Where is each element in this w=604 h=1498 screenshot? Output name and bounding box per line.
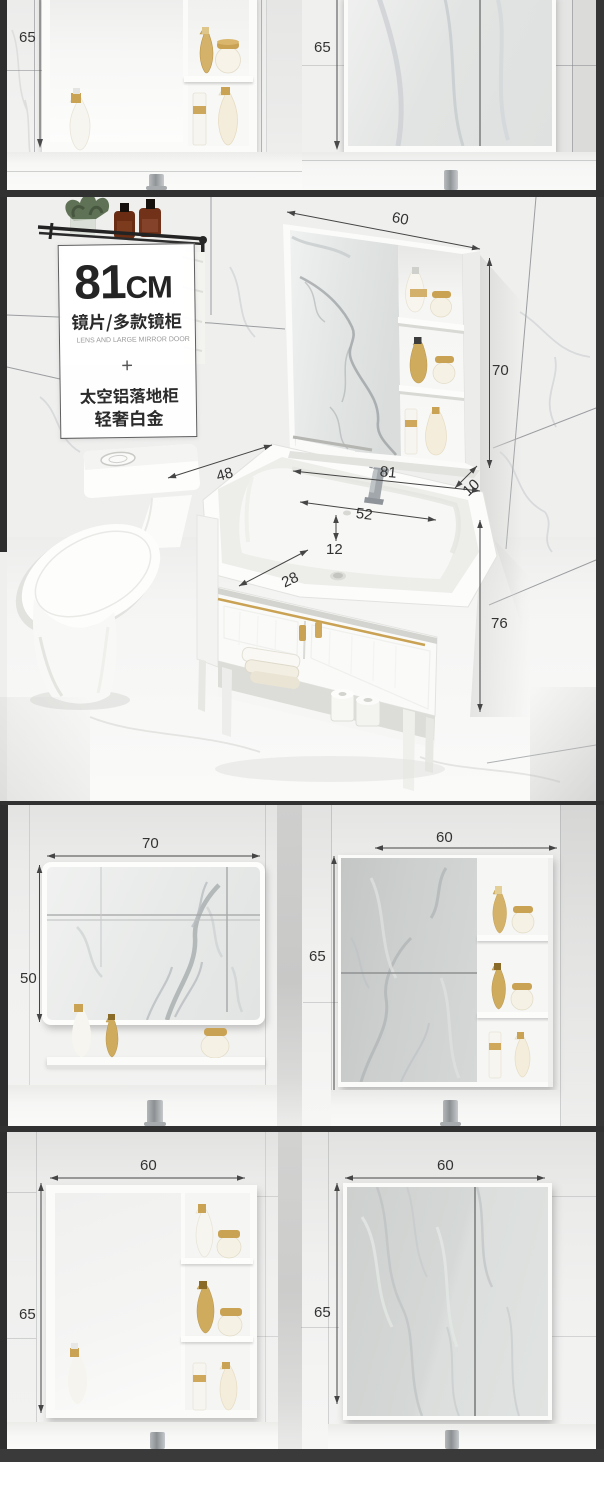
- svg-text:60: 60: [390, 209, 410, 229]
- svg-text:81: 81: [379, 463, 397, 482]
- svg-text:70: 70: [492, 362, 509, 379]
- svg-text:12: 12: [326, 541, 343, 558]
- svg-text:52: 52: [355, 505, 374, 524]
- svg-text:76: 76: [491, 615, 508, 632]
